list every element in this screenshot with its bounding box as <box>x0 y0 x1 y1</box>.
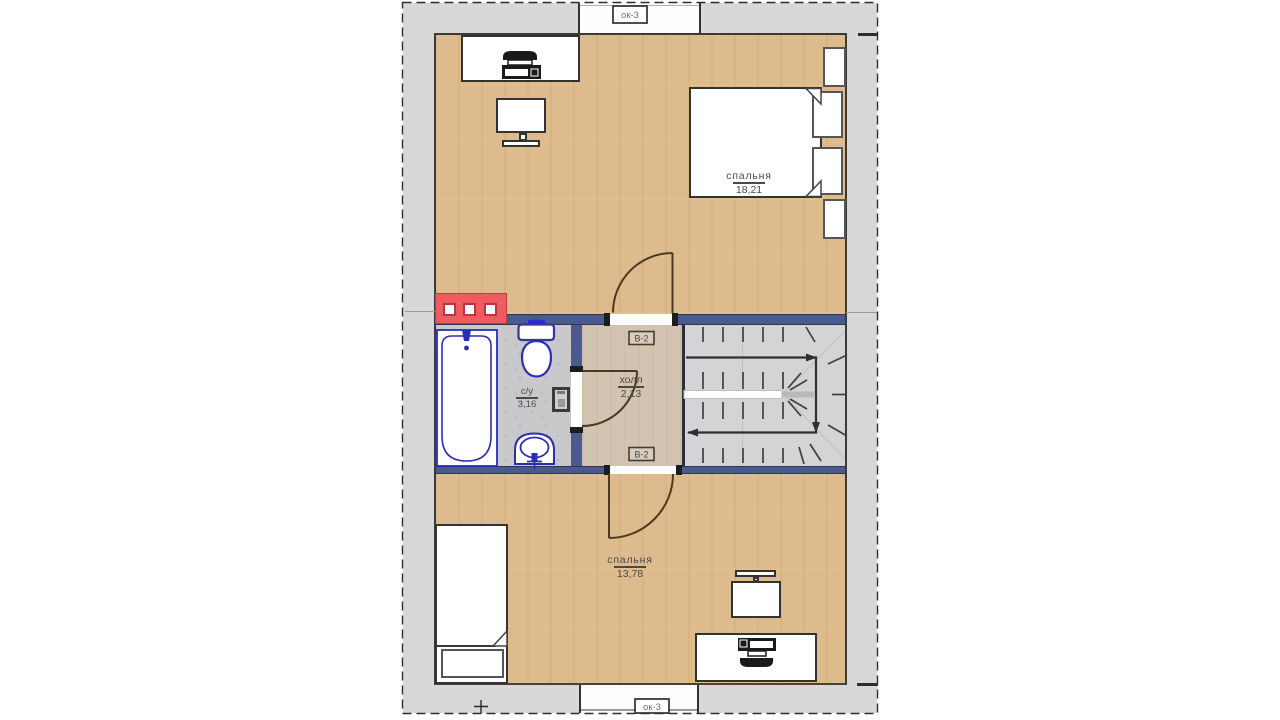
svg-text:В-2: В-2 <box>634 450 648 460</box>
svg-text:В-2: В-2 <box>634 334 648 344</box>
svg-text:ок-3: ок-3 <box>621 10 639 21</box>
svg-text:ок-3: ок-3 <box>643 702 661 713</box>
